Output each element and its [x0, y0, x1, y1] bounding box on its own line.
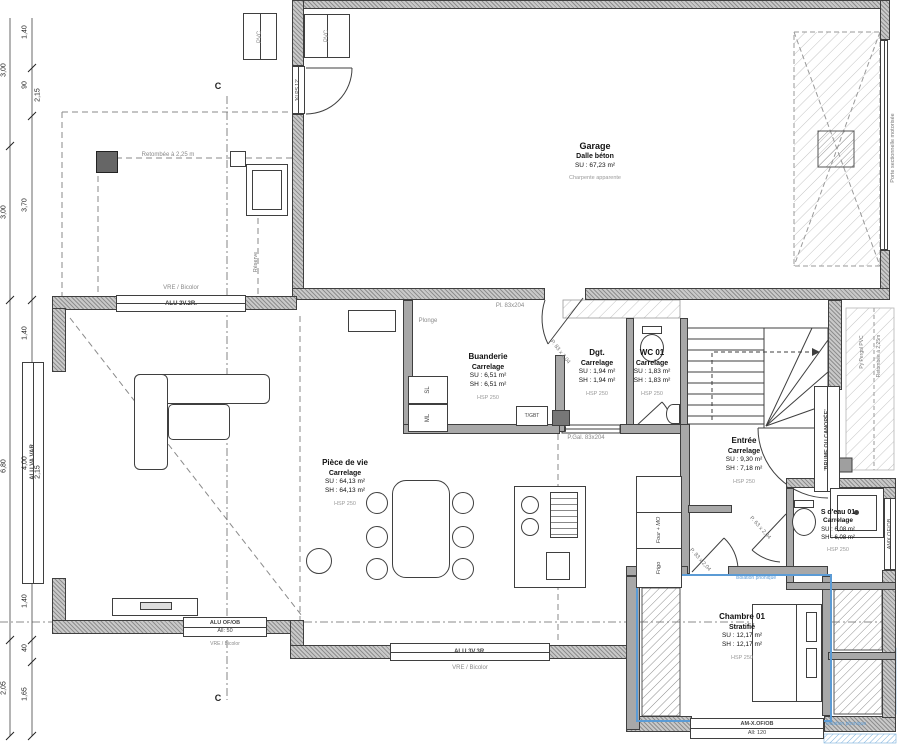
window-alu-2v2r-label: ALU 2V.2R. [165, 301, 197, 307]
room-label-sdeau: S d'eau 01 Carrelage SU : 6,08 m² SH : 6… [821, 508, 855, 555]
plonge-sink [348, 310, 396, 332]
window-amx-label: AM-X.OF/OB [741, 721, 774, 727]
burner-2 [521, 518, 539, 536]
window-pvc-1-label: PVC [257, 31, 263, 43]
chair-3 [366, 558, 388, 580]
wall-entree-right [828, 300, 842, 390]
shutter-label-3: VRE / Bicolor [452, 665, 488, 671]
sectional-door [880, 40, 888, 250]
window-alu-ofob-sub: All: 50 [217, 628, 232, 634]
floor-plan: ALU 2V.2R. VRE / Bicolor ALU.VA VAR ALU … [0, 0, 897, 745]
door-garage-hall [542, 298, 583, 344]
porch-cabinet-inner [252, 170, 282, 210]
room-label-chambre: Chambre 01 Stratifié SU : 12,17 m² SH : … [719, 612, 765, 662]
dim-outer-1: 3,00 [1, 63, 8, 77]
staircase [686, 328, 828, 428]
dim-inner-7: 2,15 [35, 465, 42, 479]
door-pl83-label: Pl. 83x204 [496, 303, 524, 309]
sdeau-wc-tank [794, 500, 814, 508]
wall-house-top-2 [245, 296, 297, 310]
wall-row-bottom-2 [620, 424, 688, 434]
garage-door-zone [794, 32, 880, 266]
island-cabinet [546, 552, 570, 580]
kitchen-sink [550, 492, 578, 538]
beam-hatch [563, 300, 680, 318]
pergola-zone [838, 308, 894, 472]
tv-screen [140, 602, 172, 610]
window-amx-sub: All: 120 [748, 730, 766, 736]
reserve-note: Réserve [253, 252, 259, 272]
pillow-2 [806, 648, 817, 678]
door-brume-label: 'BRUME OU CANOPÉE' [824, 409, 830, 470]
window-amx-side-label: AMX OF/OB [887, 519, 893, 550]
door-klps-label: 'KLPS 12' [295, 79, 301, 101]
dim-inner-6: 4,00 [22, 456, 29, 470]
door-pgal-label: P.Gal. 83x204 [567, 435, 604, 441]
wall-sdeau-top [786, 478, 896, 488]
closet-right-bottom-hatch [834, 658, 882, 714]
chair-1 [366, 492, 388, 514]
window-alu-3v3r-label: ALU 3V.3R. [454, 649, 486, 655]
pergola-note: Py Pergol PVC [859, 335, 865, 368]
wall-garage-bottom-right [585, 288, 890, 300]
window-alu-ofob-label: ALU OF/OB [210, 620, 240, 626]
side-table [306, 548, 332, 574]
shutter-label-1: VRE / Bicolor [163, 285, 199, 291]
sdeau-wc-bowl [792, 508, 816, 536]
section-marker-top: C [215, 81, 222, 91]
dim-inner-3: 2,15 [35, 88, 42, 102]
oven-label: Four + MO [656, 517, 662, 543]
bed-cover-line [796, 605, 797, 701]
dim-inner-10: 1,65 [22, 687, 29, 701]
plonge-note: Plonge [419, 318, 438, 324]
room-label-entree: Entrée Carrelage SU : 9,30 m² SH : 7,18 … [726, 436, 762, 486]
retombee2-note: Retombée à 2,25m [876, 335, 882, 378]
electrical-box [552, 410, 570, 426]
unit-divider-1 [637, 512, 681, 513]
door-pocket-pgal [558, 425, 620, 433]
wc-tank [642, 326, 662, 334]
room-label-buanderie: Buanderie Carrelage SU : 6,51 m² SH : 6,… [468, 352, 507, 402]
door-sdeau-size-label: P. 63 x 2,04 [748, 515, 772, 540]
washer-label: ML [425, 414, 431, 422]
shutter-label-2: VRE / Bicolor [210, 641, 240, 647]
retombee-note: Retombée à 2,25 m [142, 152, 195, 158]
burner-1 [521, 496, 539, 514]
dim-outer-2: 3,00 [1, 205, 8, 219]
dim-inner-1: 1,40 [22, 25, 29, 39]
isolation-note-2: isolation phonique [826, 721, 866, 727]
dryer-label: SL [425, 386, 431, 393]
section-marker-bottom: C [215, 693, 222, 703]
chair-5 [452, 526, 474, 548]
dim-inner-9: 40 [22, 644, 29, 652]
dim-inner-8: 1,40 [22, 594, 29, 608]
sofa-left-arm [134, 374, 168, 470]
isolation-note-1: isolation phonique [736, 575, 776, 581]
insulation-hatch-bottom [824, 734, 896, 743]
dining-table [392, 480, 450, 578]
porch-post [96, 151, 118, 173]
door-chambre-size-label: P. 83 x 2,04 [688, 547, 712, 572]
wall-wc-stairs [680, 318, 688, 432]
wall-garage-top [292, 0, 890, 9]
sofa-cushion [168, 404, 230, 440]
dim-inner-5: 1,40 [22, 326, 29, 340]
pillow-1 [806, 612, 817, 642]
unit-divider-2 [637, 548, 681, 549]
dim-inner-2: 90 [22, 81, 29, 89]
wall-entree-hall [688, 505, 732, 513]
window-pvc-2-label: PVC [324, 30, 330, 42]
porch-post-2 [230, 151, 246, 167]
dim-outer-4: 2,05 [1, 681, 8, 695]
wall-left-upper [52, 308, 66, 372]
room-label-piece-de-vie: Pièce de vie Carrelage SU : 64,13 m² SH … [322, 458, 368, 508]
dim-outer-3: 6,80 [1, 459, 8, 473]
door-porch-garage [306, 68, 352, 114]
wall-garage-left-lower [292, 114, 304, 300]
fridge-label: Frigo [656, 562, 662, 575]
closet-right-top-hatch [834, 586, 882, 650]
room-label-garage: Garage Dalle béton SU : 67,23 m² Charpen… [569, 140, 621, 183]
chair-4 [452, 492, 474, 514]
wc-basin [666, 404, 680, 424]
wall-bottom-left-1 [52, 620, 185, 634]
wall-garage-bottom-left [292, 288, 545, 300]
room-label-dgt: Dgt. Carrelage SU : 1,94 m² SH : 1,94 m²… [579, 348, 615, 398]
room-label-wc: WC 01 Carrelage SU : 1,83 m² SH : 1,83 m… [634, 348, 670, 398]
wall-garage-right-top [880, 0, 890, 40]
ceiling-diagonal-dashed [70, 318, 302, 616]
wall-right-2 [882, 570, 896, 718]
wall-garage-left-upper [292, 0, 304, 66]
chair-2 [366, 526, 388, 548]
dim-inner-4: 3,70 [22, 198, 29, 212]
tgbt-label: T/GBT [525, 413, 540, 419]
chair-6 [452, 558, 474, 580]
sectional-door-label: Porte sectionnelle motorisée [890, 113, 896, 182]
wall-closet-divider [828, 652, 896, 660]
wall-bottom-mid-1 [290, 645, 392, 659]
